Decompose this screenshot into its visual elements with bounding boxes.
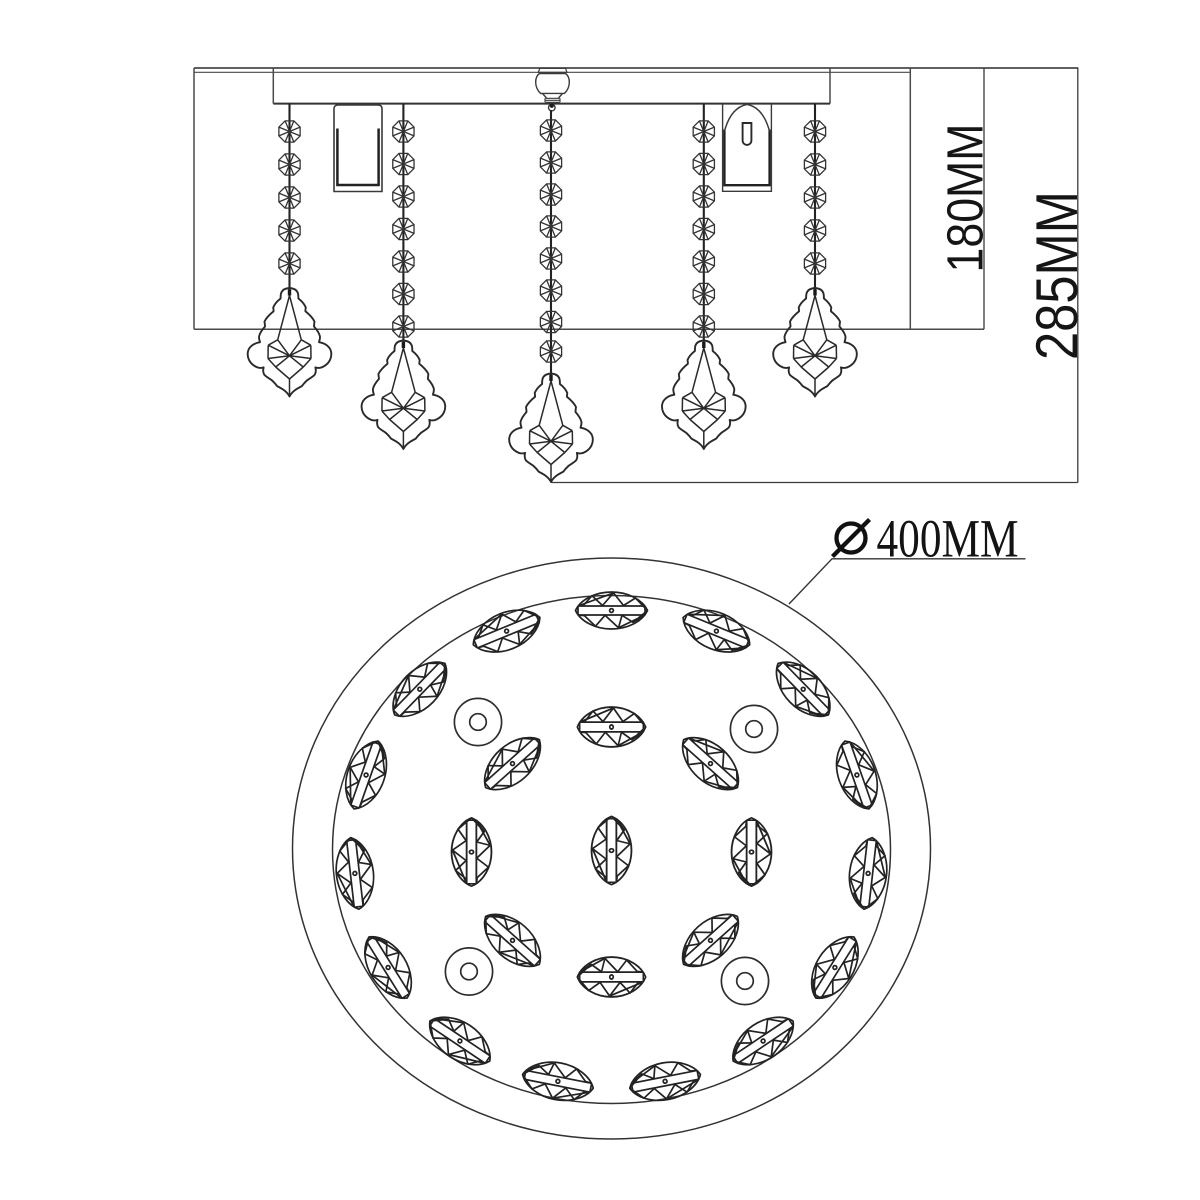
svg-text:285MM: 285MM <box>1024 191 1090 360</box>
svg-text:400MM: 400MM <box>877 509 1019 569</box>
svg-text:180MM: 180MM <box>937 124 994 273</box>
